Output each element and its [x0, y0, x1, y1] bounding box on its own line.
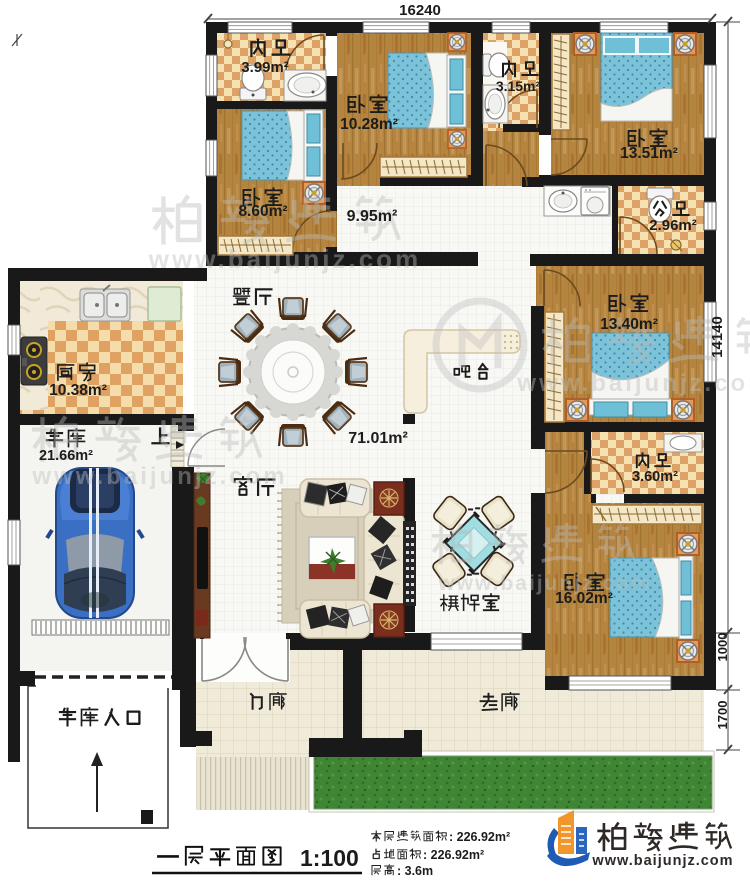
svg-text:www.baijunjz.com: www.baijunjz.com [437, 572, 651, 595]
svg-text:: 3.6m: : 3.6m [397, 864, 433, 878]
svg-text:1000: 1000 [715, 633, 730, 662]
svg-text:3.99m²: 3.99m² [241, 59, 289, 76]
svg-text:www.baijunjz.com: www.baijunjz.com [31, 463, 287, 490]
svg-text:1700: 1700 [715, 701, 730, 730]
svg-text:: 226.92m²: : 226.92m² [423, 848, 484, 862]
svg-text:9.95m²: 9.95m² [347, 208, 398, 225]
svg-text:: 226.92m²: : 226.92m² [449, 830, 510, 844]
svg-text:www.baijunjz.com: www.baijunjz.com [148, 244, 421, 274]
svg-text:3.60m²: 3.60m² [632, 469, 678, 485]
svg-text:1:100: 1:100 [300, 845, 359, 871]
svg-text:www.baijunjz.com: www.baijunjz.com [516, 370, 750, 397]
svg-text:13.51m²: 13.51m² [620, 145, 678, 162]
svg-text:13.40m²: 13.40m² [600, 316, 658, 333]
svg-text:3.15m²: 3.15m² [496, 78, 541, 94]
svg-text:8.60m²: 8.60m² [238, 203, 287, 220]
svg-text:14140: 14140 [709, 316, 726, 358]
svg-text:16.02m²: 16.02m² [555, 590, 613, 607]
svg-text:10.38m²: 10.38m² [49, 382, 107, 399]
svg-text:2.96m²: 2.96m² [649, 217, 697, 234]
svg-text:16240: 16240 [399, 2, 441, 19]
svg-text:71.01m²: 71.01m² [348, 430, 408, 447]
svg-text:21.66m²: 21.66m² [39, 448, 93, 464]
svg-text:10.28m²: 10.28m² [340, 116, 398, 133]
svg-text:www.baijunjz.com: www.baijunjz.com [591, 853, 733, 869]
